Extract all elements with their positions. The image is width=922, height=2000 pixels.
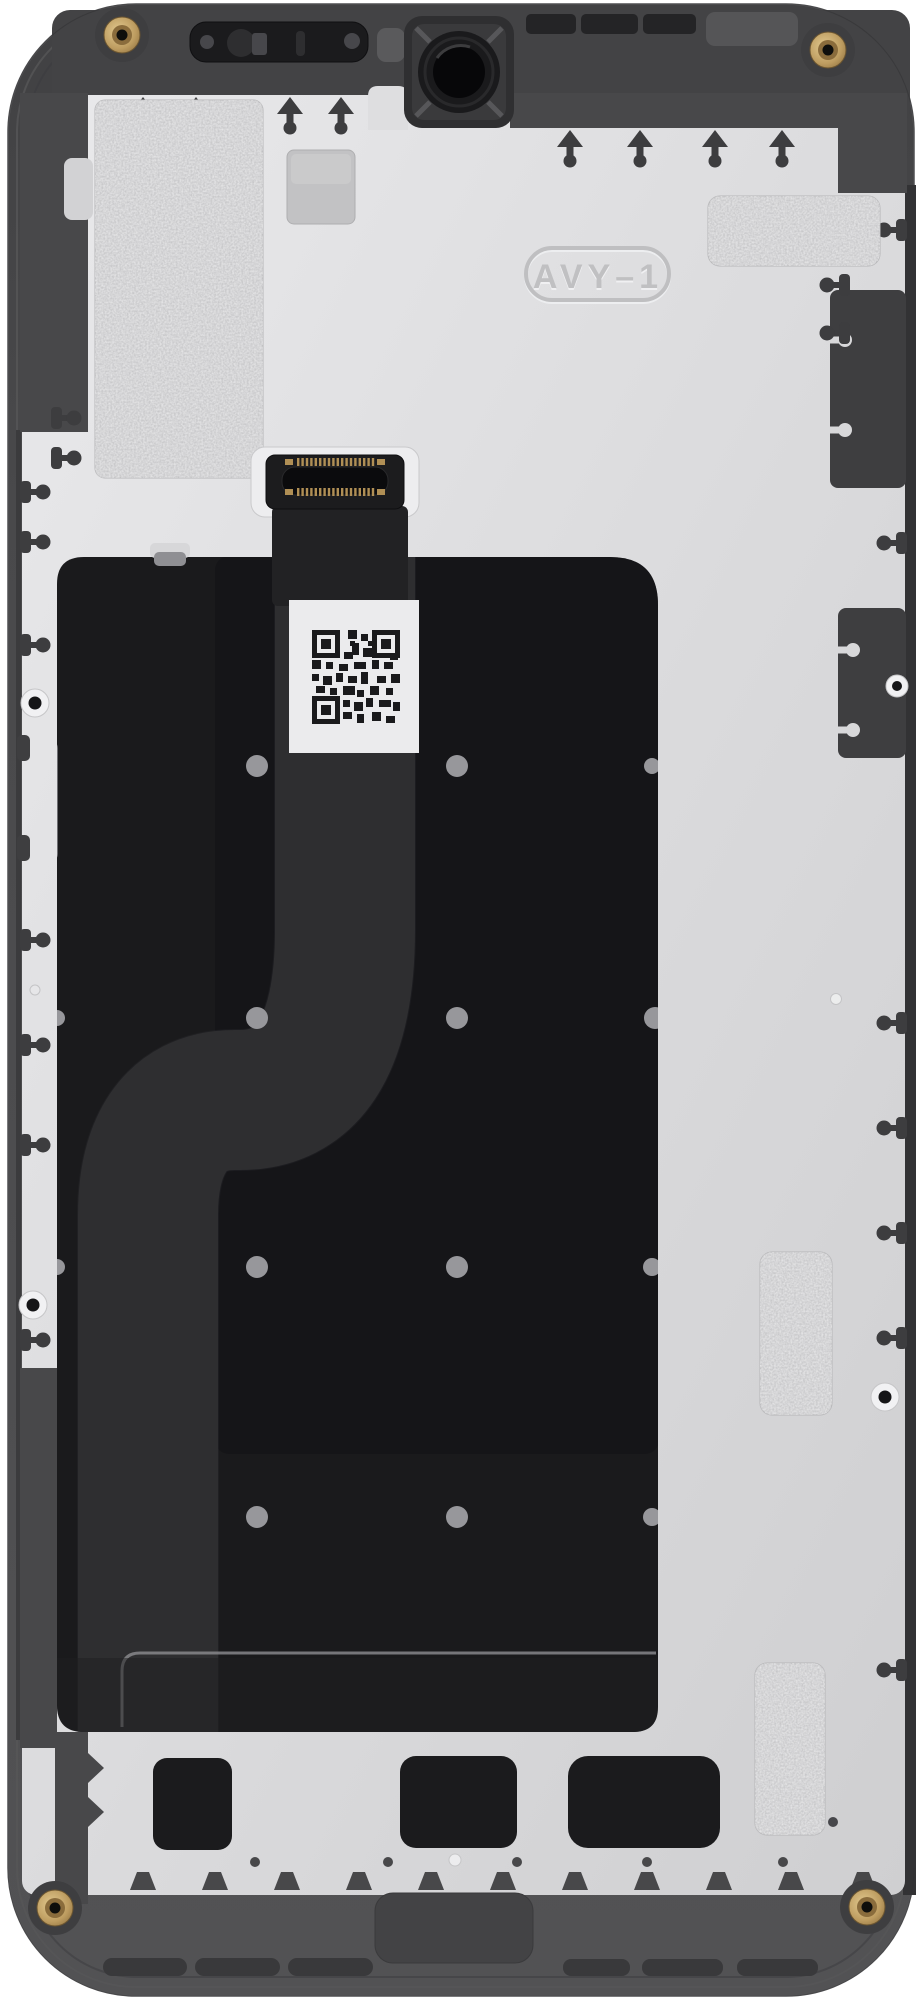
front-camera-opening [404, 16, 514, 128]
foil-sticker-right-mid [760, 1252, 832, 1415]
corner-screw-top-left [95, 8, 149, 62]
pin-hole [828, 1817, 838, 1827]
foil-sticker-bottom-right [755, 1663, 825, 1835]
part-marking-text: AVY–1 [533, 258, 663, 296]
right-edge-notch-upper [830, 290, 906, 488]
camera-left-shoulder [368, 86, 408, 130]
speaker-slot [296, 31, 305, 56]
alignment-dot [831, 994, 842, 1005]
screw-hole-center [892, 681, 902, 691]
foil-sticker-top-left [95, 100, 263, 478]
left-frame-light-tab [64, 158, 93, 220]
foil-sticker-top-right [708, 196, 880, 266]
screw-hole-center [27, 1299, 40, 1312]
board-connector [266, 455, 404, 509]
bottom-cutout [400, 1756, 517, 1848]
alignment-dot [30, 985, 40, 995]
frame-patch-left-lower [20, 1368, 57, 1748]
top-frame-recess [706, 12, 798, 46]
midframe-illustration: AVY–1 AVY–1 [0, 0, 922, 2000]
frame-patch-bottom-left [55, 1732, 88, 1904]
corner-screw-bottom-left [28, 1881, 82, 1935]
bottom-cutout [153, 1758, 232, 1850]
flex-neck [272, 506, 408, 606]
product-photo-smartphone-midframe: AVY–1 AVY–1 [0, 0, 922, 2000]
top-antenna-slots [526, 14, 696, 34]
corner-screw-top-right [801, 23, 855, 77]
frame-patch-top-left [20, 93, 88, 432]
speaker-contact [252, 33, 267, 55]
frame-patch-top-right-sliver [510, 93, 907, 128]
bottom-recess-outline [375, 1893, 533, 1963]
alignment-dot [449, 1854, 461, 1866]
speaker-screw-dot [344, 33, 360, 49]
metal-square-sticker [287, 150, 355, 224]
corner-screw-bottom-right [840, 1880, 894, 1934]
graphite-bottom-flap [57, 1658, 657, 1732]
screw-hole-center [879, 1391, 892, 1404]
frame-patch-top-right-step [838, 126, 907, 193]
panel-tab-shadow [154, 552, 186, 566]
qr-code-label [289, 600, 419, 753]
speaker-mic-hole [227, 29, 255, 57]
bottom-cutout [568, 1756, 720, 1848]
screw-hole-center [29, 697, 42, 710]
speaker-screw-dot [200, 35, 214, 49]
frame-hook-tab [377, 28, 405, 62]
earpiece-speaker [190, 22, 368, 62]
